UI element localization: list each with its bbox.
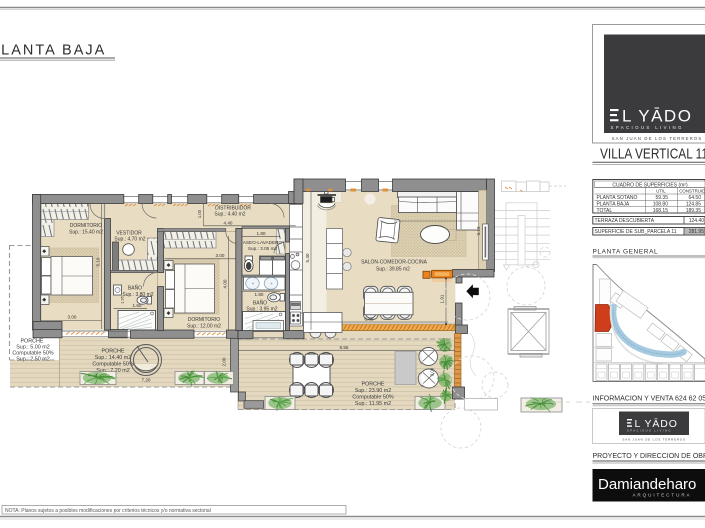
svg-text:3.19: 3.19: [476, 226, 481, 235]
svg-text:Sup.: 3.95 m2: Sup.: 3.95 m2: [246, 307, 277, 313]
svg-text:ASEO-LAVADERO: ASEO-LAVADERO: [243, 240, 283, 245]
svg-text:TOTAL: TOTAL: [597, 208, 613, 214]
svg-text:1.35: 1.35: [120, 295, 125, 304]
svg-text:SPACIOUS LIVING: SPACIOUS LIVING: [627, 429, 672, 433]
svg-text:L YĀDO: L YĀDO: [622, 107, 692, 126]
svg-text:CONSTRUIDO: CONSTRUIDO: [679, 189, 705, 194]
svg-text:BAÑO: BAÑO: [128, 285, 142, 292]
svg-text:PLANTA GENERAL: PLANTA GENERAL: [593, 249, 659, 256]
svg-text:UTIL: UTIL: [656, 189, 666, 194]
svg-text:1.80: 1.80: [257, 231, 266, 236]
svg-text:DORMITORIO: DORMITORIO: [188, 317, 221, 323]
svg-text:281.95: 281.95: [689, 229, 705, 235]
svg-text:L YĀDO: L YĀDO: [635, 418, 678, 430]
svg-text:PLANTA BAJA: PLANTA BAJA: [597, 202, 630, 208]
svg-text:PORCHE: PORCHE: [101, 349, 124, 355]
svg-text:PLANTA BAJA: PLANTA BAJA: [0, 43, 106, 59]
svg-text:Sup.: 4.70 m2: Sup.: 4.70 m2: [114, 237, 145, 243]
svg-text:Sup.: 3.05 m2: Sup.: 3.05 m2: [248, 246, 278, 251]
svg-text:1.60: 1.60: [133, 303, 142, 308]
svg-text:Damiandeharo: Damiandeharo: [598, 476, 696, 493]
svg-text:Sup.: 23.90 m2: Sup.: 23.90 m2: [355, 388, 392, 394]
svg-text:SALON-COMEDOR-COCINA: SALON-COMEDOR-COCINA: [361, 260, 428, 266]
svg-text:2.00: 2.00: [222, 357, 227, 366]
svg-text:Sup.: 11.95 m2: Sup.: 11.95 m2: [355, 401, 391, 407]
svg-text:PROYECTO Y DIRECCION DE OBRA: PROYECTO Y DIRECCION DE OBRA: [593, 453, 705, 460]
svg-text:108.80: 108.80: [653, 202, 669, 208]
svg-text:168.15: 168.15: [653, 208, 669, 214]
svg-text:SAN JUAN DE LOS TERREROS: SAN JUAN DE LOS TERREROS: [612, 136, 703, 141]
svg-text:INFORMACION Y VENTA 624 62 0: INFORMACION Y VENTA 624 62 05 0: [593, 396, 705, 403]
svg-text:Sup.: 2.50 m2: Sup.: 2.50 m2: [16, 357, 50, 363]
svg-text:NOTA: Planos sujetos a posible: NOTA: Planos sujetos a posibles modifica…: [5, 508, 211, 514]
svg-text:124.85: 124.85: [686, 202, 702, 208]
svg-text:Sup.: 39.85 m2: Sup.: 39.85 m2: [376, 267, 410, 273]
svg-text:PLANTA SOTANO: PLANTA SOTANO: [597, 195, 638, 201]
svg-text:Sup.: 15.40 m2: Sup.: 15.40 m2: [69, 230, 103, 236]
svg-text:Sup.: 14.40 m2: Sup.: 14.40 m2: [95, 355, 132, 361]
svg-text:5.40: 5.40: [305, 253, 310, 262]
svg-text:4.40: 4.40: [224, 220, 233, 225]
svg-text:SUPERFICIE DE SUB_PARCELA 11: SUPERFICIE DE SUB_PARCELA 11: [595, 229, 677, 235]
svg-text:6.85: 6.85: [365, 317, 374, 322]
svg-text:VILLA VERTICAL 11: VILLA VERTICAL 11: [600, 147, 705, 163]
svg-text:SAN JUAN DE LOS TERREROS: SAN JUAN DE LOS TERREROS: [622, 438, 685, 442]
svg-text:TERRAZA DESCUBIERTA: TERRAZA DESCUBIERTA: [595, 218, 655, 224]
svg-text:ARQUITECTURA: ARQUITECTURA: [632, 493, 691, 498]
svg-text:BAÑO: BAÑO: [253, 300, 267, 307]
svg-text:Sup.: 3.80 m2: Sup.: 3.80 m2: [122, 292, 153, 298]
svg-text:Computable 50%: Computable 50%: [352, 395, 394, 401]
svg-text:3.00: 3.00: [430, 367, 435, 376]
svg-text:124.40: 124.40: [689, 218, 705, 224]
svg-text:PORCHE: PORCHE: [361, 382, 384, 388]
svg-text:64.50: 64.50: [688, 195, 701, 201]
svg-text:5.10: 5.10: [96, 257, 101, 266]
svg-text:189.35: 189.35: [686, 208, 702, 214]
svg-text:3.00: 3.00: [216, 253, 225, 258]
svg-text:Sup.: 12.00 m2: Sup.: 12.00 m2: [187, 324, 221, 330]
svg-text:SPACIOUS LIVING: SPACIOUS LIVING: [611, 125, 684, 130]
svg-text:DORMITORIO: DORMITORIO: [70, 223, 103, 229]
svg-text:3.00: 3.00: [68, 315, 77, 320]
svg-text:Computable 50%: Computable 50%: [92, 362, 134, 368]
svg-text:4.00: 4.00: [223, 279, 228, 288]
svg-text:1.00: 1.00: [197, 209, 202, 218]
svg-text:59.35: 59.35: [655, 195, 668, 201]
svg-text:1.80: 1.80: [255, 292, 264, 297]
svg-text:Sup.: 4.40 m2: Sup.: 4.40 m2: [214, 212, 245, 218]
svg-text:8.55: 8.55: [340, 345, 349, 350]
svg-text:7.20: 7.20: [142, 378, 151, 383]
